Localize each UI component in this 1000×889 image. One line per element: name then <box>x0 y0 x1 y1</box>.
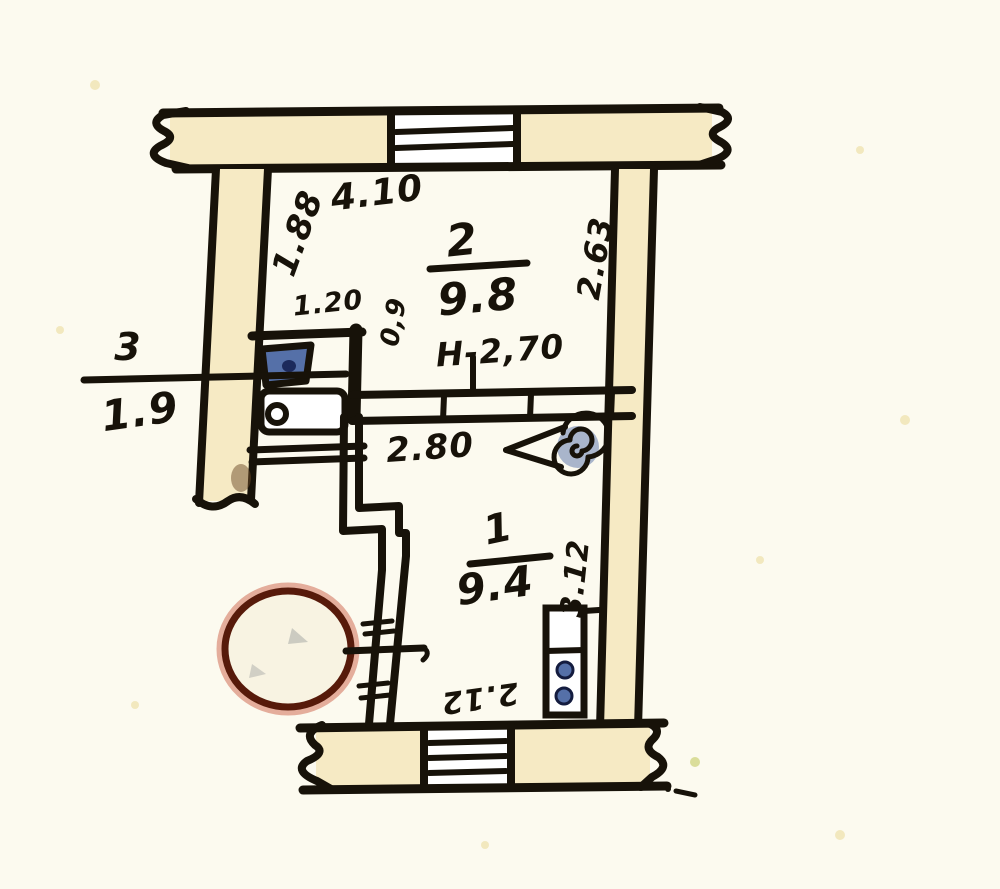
wall-tick <box>359 683 388 686</box>
partition-tick <box>530 394 531 418</box>
vent-port-icon <box>557 662 573 678</box>
dim-partition-length: 2.80 <box>385 425 475 471</box>
partition-top-line <box>352 390 632 395</box>
top-window-glazing-line <box>396 128 513 132</box>
room2-area: 9.8 <box>435 269 520 327</box>
speckle-icon <box>131 701 139 709</box>
partition-tick <box>443 396 444 420</box>
dim-ceiling-height: H-2,70 <box>434 327 565 375</box>
speckle-icon <box>856 146 864 154</box>
speckle-icon <box>756 556 764 564</box>
stamp-ring-icon <box>225 591 351 707</box>
dim-niche-depth: 0,9 <box>375 295 413 349</box>
wall-tick <box>363 621 392 624</box>
stamp-leader-line <box>346 648 424 651</box>
floor-plan-drawing: 4.10 1.88 2.63 2 9.8 1.20 0,9 H-2,70 3 1… <box>0 0 1000 889</box>
room1-number: 1 <box>479 503 517 554</box>
dim-room2-left-height: 1.88 <box>264 185 332 281</box>
stray-ink-dash <box>676 791 695 795</box>
dim-room1-bottom-width: 2.12 <box>439 675 521 721</box>
room1-area: 9.4 <box>453 556 536 615</box>
stove-icon <box>261 391 345 432</box>
sink-drain-icon <box>282 360 296 372</box>
wall-tick <box>361 695 390 698</box>
bottom-wall-outer-edge <box>303 786 667 790</box>
niche-side-wall <box>354 330 356 418</box>
dim-room1-right-height: 3.12 <box>554 538 597 619</box>
speckle-icon <box>690 757 700 767</box>
bottom-wall-inner-edge <box>300 723 664 728</box>
wall-tick <box>365 631 394 634</box>
stray-ink-dot <box>665 786 671 792</box>
speckle-icon <box>56 326 64 334</box>
top-window-glazing-line <box>396 144 513 148</box>
speckle-icon <box>835 830 845 840</box>
top-wall-outer-edge <box>163 108 719 113</box>
dim-top-width: 4.10 <box>328 167 426 219</box>
vent-shaft <box>546 608 599 715</box>
room3-area: 1.9 <box>98 382 181 441</box>
top-window-glass <box>391 113 517 165</box>
partition-bottom-line <box>352 416 632 421</box>
top-exterior-wall <box>154 107 728 169</box>
ink-blotch <box>231 464 251 492</box>
speckle-icon <box>481 841 489 849</box>
partition-tick <box>611 392 612 417</box>
niche-top-wall <box>252 332 362 336</box>
speckle-icon <box>90 80 100 90</box>
room2-number: 2 <box>444 213 481 267</box>
floor-plan-page: 4.10 1.88 2.63 2 9.8 1.20 0,9 H-2,70 3 1… <box>0 0 1000 889</box>
stamp-leader-hook <box>423 648 427 660</box>
speckle-icon <box>900 415 910 425</box>
room3-number: 3 <box>114 325 141 369</box>
top-wall-inner-edge <box>176 165 721 169</box>
vent-shaft-divider <box>546 650 584 651</box>
bottom-window-glazing-line <box>429 771 506 773</box>
stamp-circle <box>222 588 354 710</box>
vent-port-icon <box>556 688 572 704</box>
bottom-window-glazing-line <box>429 756 506 758</box>
bottom-exterior-wall <box>300 723 695 795</box>
bottom-window-glazing-line <box>429 741 506 743</box>
dim-niche-width: 1.20 <box>291 284 364 322</box>
